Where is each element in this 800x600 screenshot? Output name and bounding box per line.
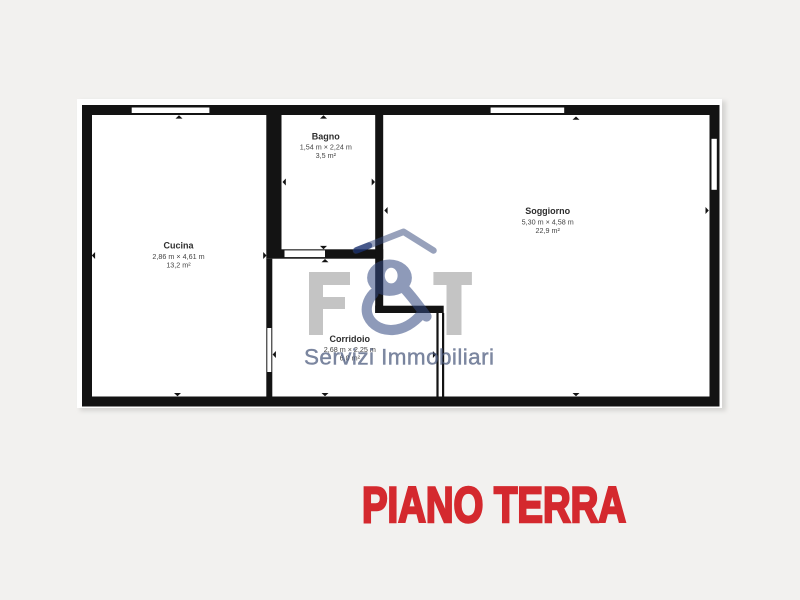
svg-text:PIANO TERRA: PIANO TERRA	[362, 477, 626, 533]
svg-text:3,5 m²: 3,5 m²	[316, 151, 337, 160]
svg-text:Bagno: Bagno	[312, 132, 341, 142]
svg-text:Corridoio: Corridoio	[330, 334, 371, 344]
svg-text:13,2 m²: 13,2 m²	[166, 260, 191, 269]
svg-text:22,9 m²: 22,9 m²	[536, 226, 561, 235]
svg-text:Cucina: Cucina	[163, 241, 194, 251]
svg-text:Soggiorno: Soggiorno	[525, 206, 570, 216]
svg-text:Servizi Immobiliari: Servizi Immobiliari	[304, 345, 494, 370]
